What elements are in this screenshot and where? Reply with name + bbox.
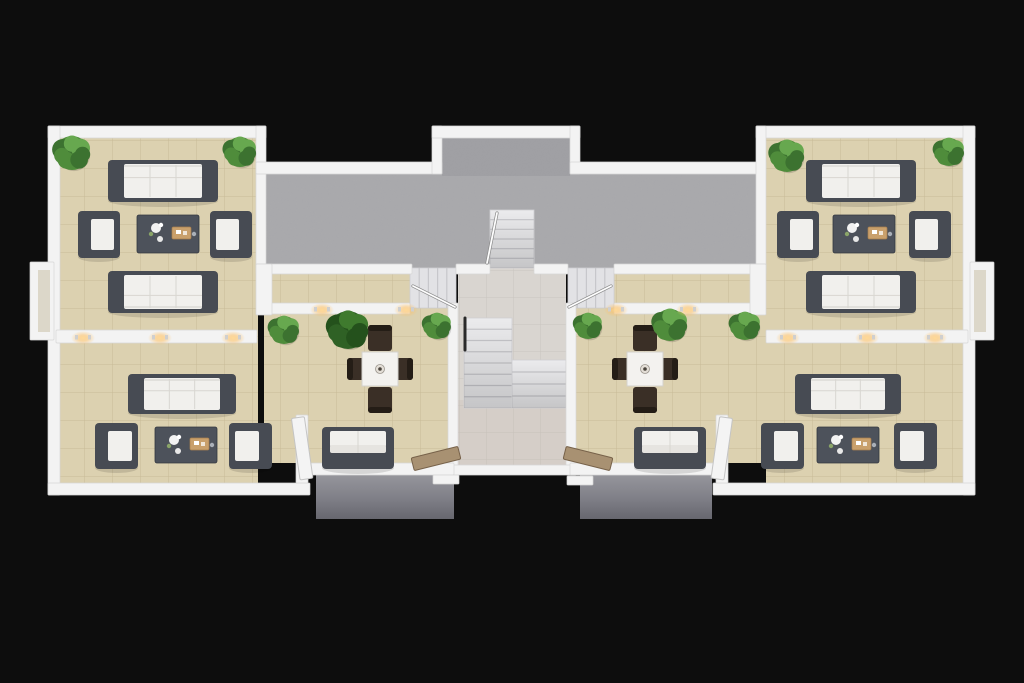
sofa-right-upper-north — [806, 160, 916, 207]
wall-light-fixture — [238, 335, 241, 340]
wall-light — [148, 331, 172, 345]
wall-light-glow — [71, 331, 95, 345]
wall-light-glow — [394, 303, 418, 317]
sofa-right-upper-south — [806, 271, 916, 318]
dining-chair-north-back — [368, 325, 392, 331]
plant-left-opening-foliage — [269, 326, 282, 339]
wall-light — [310, 303, 334, 317]
armchair-right-lower-west — [761, 423, 804, 473]
decor-flowers — [855, 223, 859, 227]
wall-light-fixture — [621, 307, 624, 312]
dining-chair-east-back — [407, 358, 413, 380]
wall-corridor-south-left — [268, 303, 410, 314]
decor-tray-item — [872, 230, 877, 234]
wall-light-fixture — [88, 335, 91, 340]
decor-knob — [872, 443, 876, 447]
decor-cup — [157, 236, 163, 242]
wall-chunk-right — [750, 264, 766, 315]
wall-light-fixture — [872, 335, 875, 340]
sofa-left-upper-south — [108, 271, 218, 318]
sofa-balcony-right — [634, 427, 706, 474]
wall-light — [71, 331, 95, 345]
plant-left-wing-nw-foliage — [54, 148, 69, 163]
wall-light-fixture — [411, 307, 414, 312]
dining-chair-west-back — [612, 358, 618, 380]
bay-inset-left — [38, 270, 50, 332]
armchair-right-upper-east — [909, 211, 951, 262]
armchair-right-lower-east-cushion — [900, 431, 924, 461]
coffee-table-left-lower — [155, 427, 217, 463]
wall-light-fixture — [693, 307, 696, 312]
decor-knob — [210, 443, 214, 447]
wall-top-left-wing — [48, 126, 266, 138]
decor-item — [643, 367, 647, 371]
wall-light — [855, 331, 879, 345]
plant-left-wing-ne-foliage — [224, 148, 238, 162]
dining-chair-south-back — [368, 407, 392, 413]
wall-light-fixture — [314, 307, 317, 312]
bay-inset-right — [974, 270, 986, 332]
threshold-balcony-right — [567, 476, 593, 485]
decor-leaf — [829, 444, 833, 448]
plant-right-wing-nw-foliage — [770, 151, 784, 165]
sofa-right-lower-cushion — [811, 378, 885, 410]
sofa-balcony-left — [322, 427, 394, 474]
wall-light-glow — [776, 331, 800, 345]
decor-tray — [852, 438, 871, 450]
plant-right-wing-nw-foliage — [790, 150, 804, 164]
plant-right-opening-foliage — [730, 322, 743, 335]
wall-bump-top — [432, 126, 580, 138]
plant-right-wing-ne-foliage — [951, 147, 964, 160]
floor-terrace-bump-texture — [442, 136, 570, 176]
wall-light-glow — [310, 303, 334, 317]
coffee-table-right-lower — [817, 427, 879, 463]
plant-left-opening-foliage — [286, 325, 299, 338]
decor-knob — [888, 232, 892, 236]
armchair-left-lower-east — [229, 423, 272, 473]
wall-bottom-left-wing — [48, 483, 310, 495]
dining-chair-west-back — [347, 358, 353, 380]
wall-light-fixture — [927, 335, 930, 340]
wall-terrace-top-left — [256, 162, 442, 174]
wall-light-glow — [221, 331, 245, 345]
wall-light-fixture — [152, 335, 155, 340]
plant-right-dining-foliage — [673, 319, 687, 333]
plant-left-dining-foliage — [328, 324, 345, 341]
wall-light-fixture — [780, 335, 783, 340]
armchair-left-upper-east — [210, 211, 252, 262]
wall-light-glow — [855, 331, 879, 345]
wall-hall-bottom — [448, 465, 576, 475]
decor-tray-item — [201, 442, 205, 446]
armchair-left-upper-west-cushion — [91, 219, 114, 250]
wall-light — [394, 303, 418, 317]
decor-tray — [868, 227, 887, 239]
wall-under-terrace-left — [256, 264, 412, 274]
floor-hall-lower-tint — [458, 400, 566, 468]
wall-light-fixture — [225, 335, 228, 340]
wall-light-fixture — [398, 307, 401, 312]
decor-item — [378, 367, 382, 371]
wall-light-fixture — [165, 335, 168, 340]
sofa-left-lower-cushion — [144, 378, 220, 410]
decor-flowers — [177, 435, 181, 439]
armchair-right-upper-west-cushion — [790, 219, 813, 250]
sofa-right-upper-north-cushion — [822, 164, 900, 198]
sofa-left-lower — [128, 374, 236, 419]
decor-tray — [172, 227, 191, 239]
decor-cup — [175, 448, 181, 454]
armchair-right-lower-west-cushion — [774, 431, 798, 461]
wall-light-glow — [604, 303, 628, 317]
wall-chunk-left — [256, 264, 272, 315]
armchair-right-lower-east — [894, 423, 937, 473]
plant-right-hall-door-foliage — [590, 321, 602, 333]
sofa-left-upper-south-cushion — [124, 275, 202, 309]
decor-flowers — [159, 223, 163, 227]
plant-left-wing-ne-foliage — [243, 146, 256, 160]
armchair-right-upper-west — [777, 211, 819, 262]
decor-leaf — [167, 444, 171, 448]
threshold-balcony-left — [433, 475, 459, 484]
dining-chair-south-back — [633, 407, 657, 413]
wall-light-fixture — [608, 307, 611, 312]
wall-light-fixture — [327, 307, 330, 312]
wall-light — [604, 303, 628, 317]
wall-light-fixture — [75, 335, 78, 340]
wall-top-right-wing — [756, 126, 975, 138]
decor-cup — [837, 448, 843, 454]
decor-knob — [192, 232, 196, 236]
sofa-right-upper-south-cushion — [822, 275, 900, 309]
plant-right-hall-door-foliage — [574, 322, 586, 334]
floor-balcony-right — [580, 472, 712, 519]
plant-right-wing-ne-foliage — [934, 148, 947, 161]
wall-light-fixture — [940, 335, 943, 340]
wall-sep-right-terrace — [756, 126, 766, 268]
wall-light — [923, 331, 947, 345]
wall-light-fixture — [793, 335, 796, 340]
plant-left-hall-door-foliage — [423, 322, 435, 334]
decor-flowers — [839, 435, 843, 439]
coffee-table-left-upper — [137, 215, 199, 253]
decor-cup — [853, 236, 859, 242]
decor-tray-item — [176, 230, 181, 234]
decor-tray-item — [194, 441, 199, 445]
armchair-left-lower-west — [95, 423, 138, 473]
plant-left-dining-foliage — [351, 323, 368, 340]
armchair-left-lower-east-cushion — [235, 431, 259, 461]
wall-under-terrace-right — [614, 264, 766, 274]
wall-light-glow — [923, 331, 947, 345]
plant-right-dining-foliage — [653, 320, 667, 334]
floor-plan-stage — [0, 0, 1024, 683]
decor-tray — [190, 438, 209, 450]
decor-tray-item — [863, 442, 867, 446]
wall-sep-left-terrace — [256, 126, 266, 268]
floor-plan — [0, 0, 1024, 683]
wall-light-glow — [676, 303, 700, 317]
decor-tray-item — [856, 441, 861, 445]
decor-leaf — [845, 232, 849, 236]
dining-chair-east-back — [672, 358, 678, 380]
decor-leaf — [149, 232, 153, 236]
sofa-left-upper-north-cushion — [124, 164, 202, 198]
armchair-left-upper-west — [78, 211, 120, 262]
wall-under-terrace-hall-left — [456, 264, 490, 274]
sofa-right-lower — [795, 374, 901, 419]
wall-light — [676, 303, 700, 317]
sofa-left-upper-north — [108, 160, 218, 207]
wall-light-glow — [148, 331, 172, 345]
decor-tray-item — [183, 231, 187, 235]
wall-light-fixture — [859, 335, 862, 340]
armchair-left-upper-east-cushion — [216, 219, 239, 250]
plant-right-opening-foliage — [747, 321, 760, 334]
plant-left-hall-door-foliage — [439, 321, 451, 333]
wall-under-terrace-hall-right — [534, 264, 568, 274]
armchair-left-lower-west-cushion — [108, 431, 132, 461]
wall-terrace-top-right — [570, 162, 766, 174]
armchair-right-upper-east-cushion — [915, 219, 938, 250]
stair-main-lower-shade — [512, 360, 566, 408]
wall-light — [221, 331, 245, 345]
plant-left-wing-nw-foliage — [75, 147, 90, 162]
stair-main-upper-shade — [464, 318, 512, 408]
coffee-table-right-upper — [833, 215, 895, 253]
wall-bottom-right-wing — [713, 483, 975, 495]
decor-tray-item — [879, 231, 883, 235]
wall-light-fixture — [680, 307, 683, 312]
wall-light — [776, 331, 800, 345]
